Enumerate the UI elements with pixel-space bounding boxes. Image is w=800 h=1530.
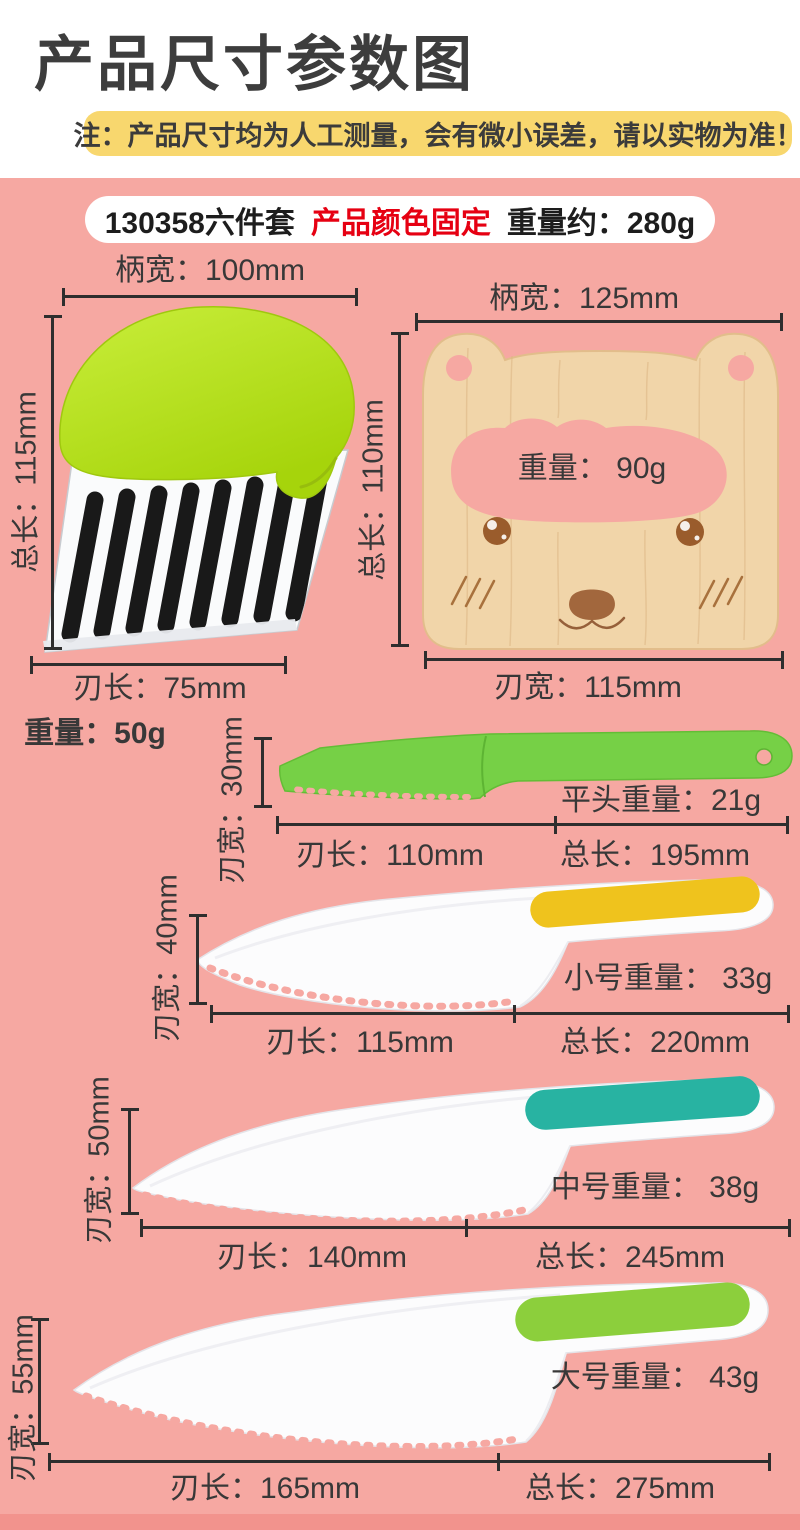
medium-blade-width-label: 刃宽：50mm: [86, 1076, 115, 1244]
bottom-edge-strip: [0, 1514, 800, 1530]
dimension-mid-tick: [513, 1005, 516, 1023]
large-total-length-label: 总长：275mm: [525, 1474, 715, 1504]
dimension-line: [62, 295, 358, 298]
dimension-line: [276, 823, 789, 826]
ear-hole-left: [446, 355, 472, 381]
large-blade-width-label: 刃宽：55mm: [10, 1314, 39, 1482]
dimension-mid-tick: [497, 1453, 500, 1471]
dimension-line: [30, 663, 287, 666]
dimension-line: [415, 320, 783, 323]
crinkle-cutter-image: [43, 307, 354, 652]
crinkle-total-length-label: 总长：115mm: [13, 391, 42, 573]
dimension-line: [48, 1460, 771, 1463]
small-weight-label: 小号重量： 33g: [564, 964, 772, 994]
color-fixed-note: 产品颜色固定: [311, 198, 491, 242]
medium-weight-label: 中号重量： 38g: [551, 1173, 759, 1203]
dimension-line: [196, 914, 199, 1005]
bear-blade-width-label: 刃宽：115mm: [494, 673, 682, 703]
ear-hole-right: [728, 355, 754, 381]
large-blade-length-label: 刃长：165mm: [170, 1474, 360, 1504]
hang-hole: [756, 749, 772, 765]
dimension-line: [398, 332, 401, 647]
small-blade-length-label: 刃长：115mm: [266, 1028, 454, 1058]
small-blade-width-label: 刃宽：40mm: [154, 874, 183, 1042]
flat-blade-width-label: 刃宽：30mm: [219, 716, 248, 884]
dimension-line: [210, 1012, 790, 1015]
flat-total-length-label: 总长：195mm: [560, 841, 750, 871]
dimension-line: [128, 1108, 131, 1215]
bear-total-length-label: 总长：110mm: [360, 399, 389, 581]
dimension-mid-tick: [465, 1219, 468, 1237]
crinkle-weight-label: 重量：50g: [24, 719, 166, 749]
product-info-pill: 130358六件套 产品颜色固定 重量约：280g: [85, 196, 715, 243]
medium-total-length-label: 总长：245mm: [535, 1243, 725, 1273]
set-weight: 重量约：280g: [507, 198, 695, 242]
small-total-length-label: 总长：220mm: [560, 1028, 750, 1058]
large-weight-label: 大号重量： 43g: [551, 1363, 759, 1393]
dimension-mid-tick: [554, 816, 557, 834]
crinkle-blade-length-label: 刃长：75mm: [73, 674, 246, 704]
flat-blade-length-label: 刃长：110mm: [296, 841, 484, 871]
page-title: 产品尺寸参数图: [34, 16, 475, 103]
product-spec-page: 产品尺寸参数图 注：产品尺寸均为人工测量，会有微小误差，请以实物为准！ 1303…: [0, 0, 800, 1530]
bear-handle-width-label: 柄宽：125mm: [489, 284, 679, 314]
crinkle-handle-width-label: 柄宽：100mm: [115, 256, 305, 286]
dimension-line: [140, 1226, 791, 1229]
flat-weight-label: 平头重量：21g: [561, 786, 761, 816]
note-text: 注：产品尺寸均为人工测量，会有微小误差，请以实物为准！: [74, 114, 800, 153]
model-number: 130358六件套: [105, 198, 295, 242]
medium-blade-length-label: 刃长：140mm: [217, 1243, 407, 1273]
dimension-line: [424, 658, 784, 661]
bear-knife-image: [423, 334, 778, 649]
measurement-note: 注：产品尺寸均为人工测量，会有微小误差，请以实物为准！: [84, 111, 792, 156]
dimension-line: [261, 737, 264, 808]
dimension-line: [51, 315, 54, 650]
bear-weight-label: 重量： 90g: [518, 454, 666, 484]
